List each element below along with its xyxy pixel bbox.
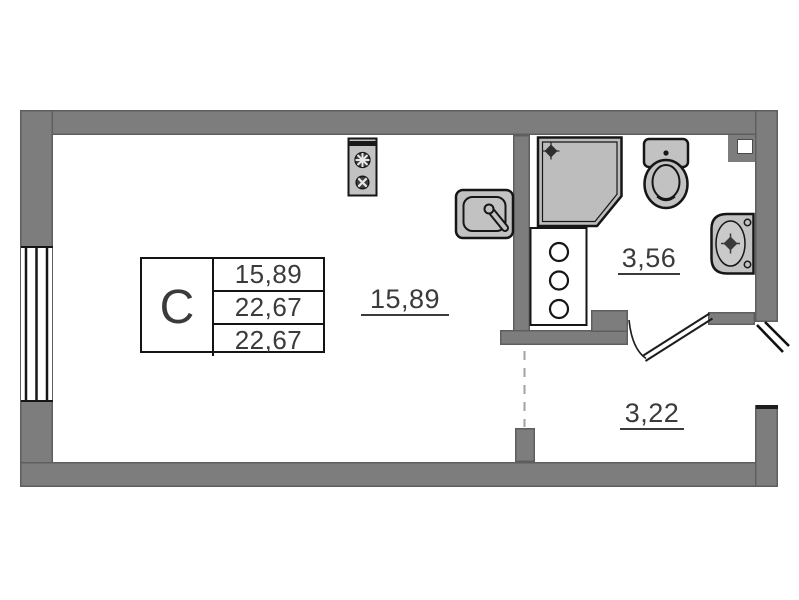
bathroom-door-icon (629, 314, 713, 362)
stamp-total-area: 22,67 (214, 290, 323, 323)
stamp-living-area: 15,89 (214, 259, 323, 290)
bathroom-area-label: 3,56 (618, 244, 680, 275)
washing-column-icon (531, 228, 587, 325)
living-room-area-label: 15,89 (361, 285, 449, 316)
wash-basin-icon (712, 214, 754, 274)
stamp-total-area-with-balcony: 22,67 (214, 323, 323, 356)
entrance-door-icon (757, 322, 789, 352)
stove-icon (349, 139, 377, 196)
kitchen-sink-icon (456, 190, 513, 238)
hallway-area-label: 3,22 (620, 399, 684, 430)
toilet-icon (644, 139, 688, 208)
shower-icon (538, 138, 622, 227)
window-icon (21, 246, 53, 402)
apartment-stamp-table: С 15,89 22,67 22,67 (140, 257, 325, 353)
floor-plan: 15,89 3,56 3,22 С 15,89 22,67 22,67 (0, 0, 799, 600)
apartment-type-letter: С (142, 259, 214, 356)
